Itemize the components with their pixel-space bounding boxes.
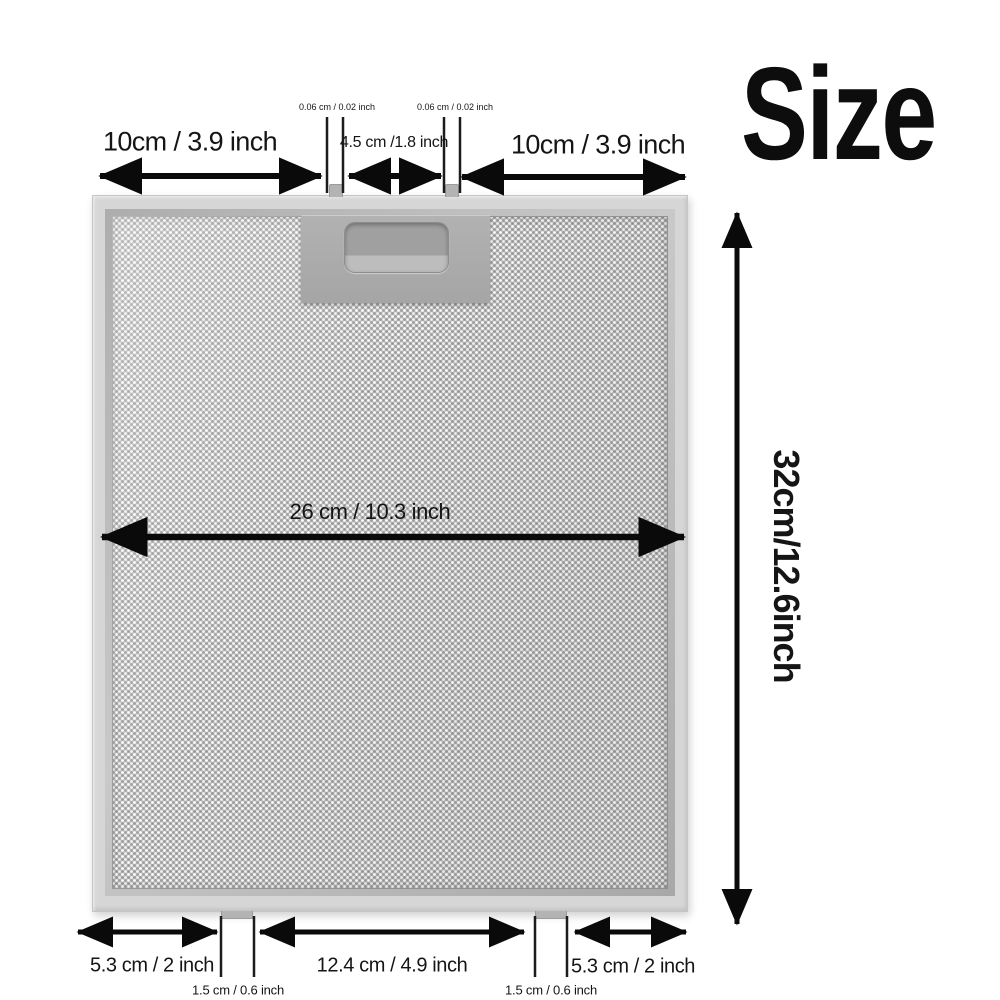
label-handle-gap: 4.5 cm /1.8 inch bbox=[340, 134, 448, 152]
label-top-right: 10cm / 3.9 inch bbox=[511, 130, 685, 161]
label-height: 32cm/12.6inch bbox=[765, 449, 807, 682]
label-bottom-tab-left: 1.5 cm / 0.6 inch bbox=[192, 983, 284, 998]
label-top-left: 10cm / 3.9 inch bbox=[103, 127, 277, 158]
label-bottom-left: 5.3 cm / 2 inch bbox=[90, 955, 214, 978]
label-bottom-tab-right: 1.5 cm / 0.6 inch bbox=[505, 983, 597, 998]
label-pin-right: 0.06 cm / 0.02 inch bbox=[417, 102, 493, 112]
label-bottom-right: 5.3 cm / 2 inch bbox=[571, 956, 695, 979]
label-bottom-center: 12.4 cm / 4.9 inch bbox=[317, 955, 468, 978]
label-pin-left: 0.06 cm / 0.02 inch bbox=[299, 102, 375, 112]
product-size-diagram: Size bbox=[0, 0, 1000, 1000]
label-width: 26 cm / 10.3 inch bbox=[290, 499, 451, 525]
